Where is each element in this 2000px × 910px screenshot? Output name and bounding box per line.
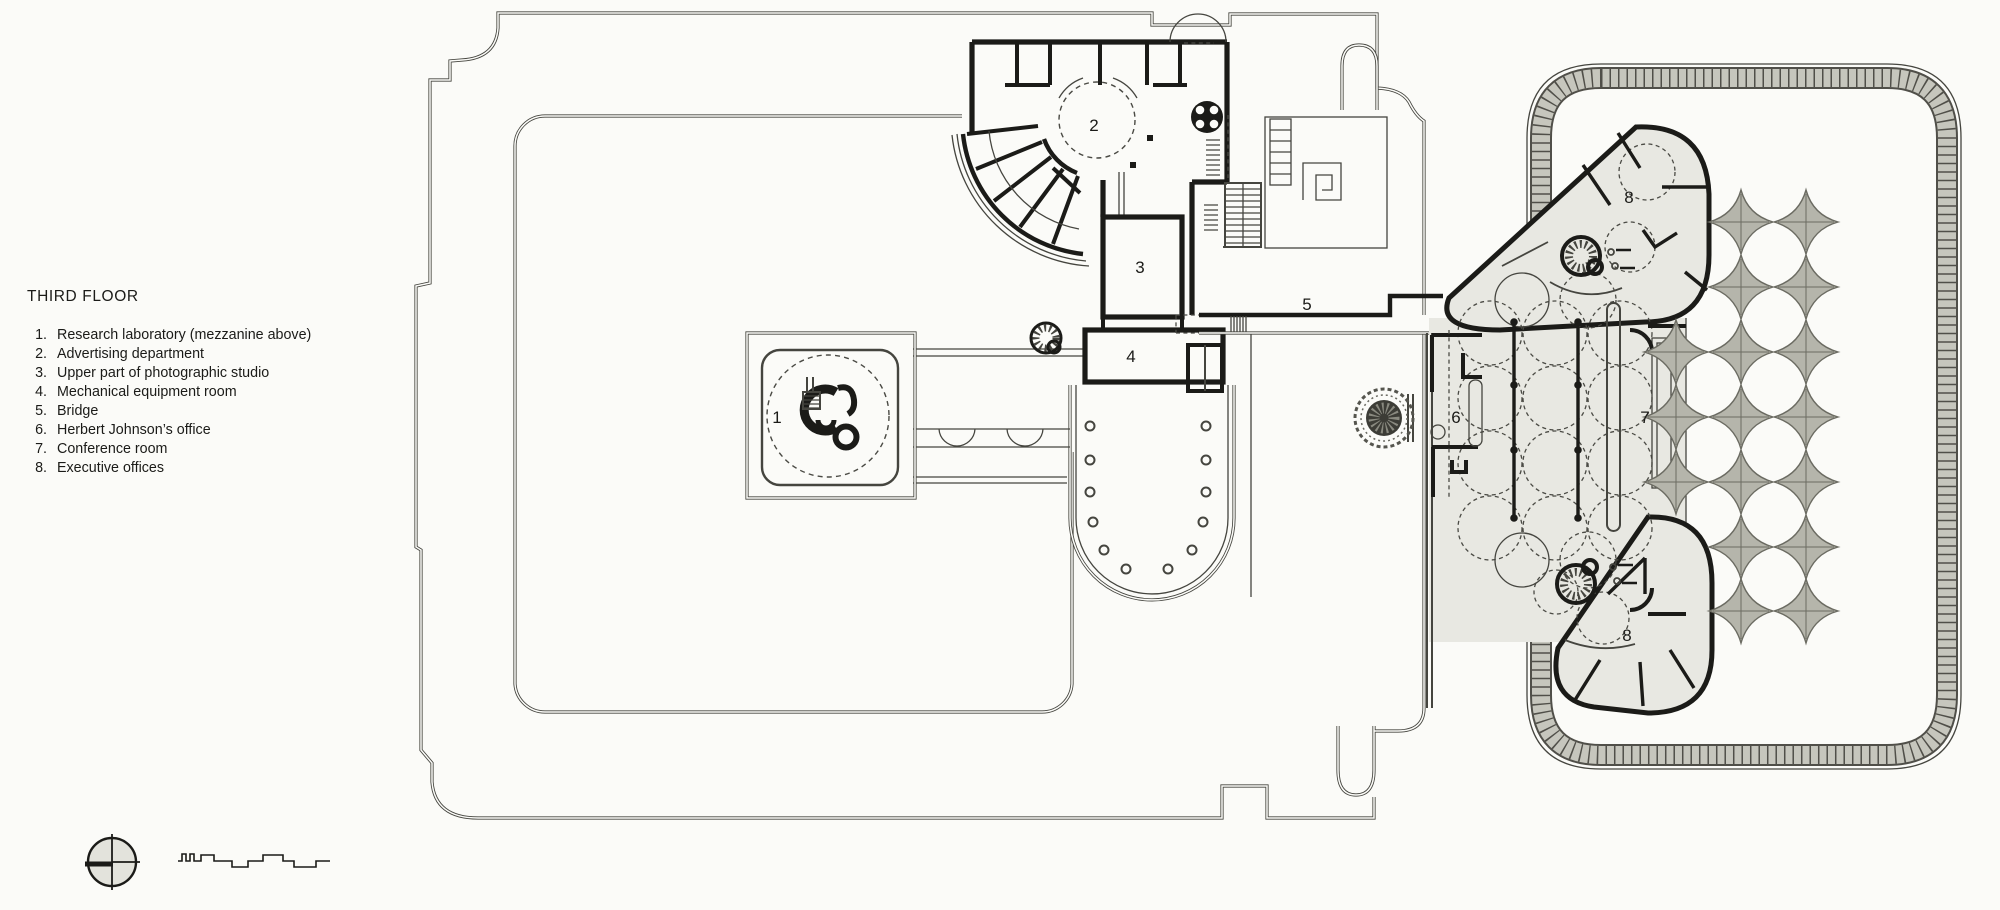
marker-advertising: 2 <box>1089 116 1098 135</box>
column-star <box>1774 450 1838 514</box>
legend-item-num: 4. <box>35 384 47 400</box>
marker-executive-lower: 8 <box>1622 626 1631 645</box>
site-boundary-outline-inner <box>416 13 1424 818</box>
elevator-icon <box>1191 101 1223 133</box>
rail-dot <box>1510 318 1518 326</box>
mechanical-room <box>1085 330 1223 382</box>
right-building <box>1427 64 1961 769</box>
research-lab-rounded-wall <box>762 350 898 485</box>
column-star <box>1709 320 1773 384</box>
upper-block <box>952 14 1387 382</box>
great-workroom-outline <box>515 116 1072 712</box>
research-lab-core-icon <box>803 377 857 448</box>
elevator-cab <box>1210 106 1219 115</box>
left-building-site <box>416 13 1443 818</box>
column-dot <box>1202 456 1211 465</box>
legend-item-label: Mechanical equipment room <box>57 384 237 400</box>
scale-bar <box>178 854 330 867</box>
legend-item-num: 3. <box>35 365 47 381</box>
column-dot <box>1164 565 1173 574</box>
arched-niche-top <box>1342 45 1377 110</box>
advertising-fan-arcs <box>963 134 1083 254</box>
covered-walkway <box>913 429 1070 483</box>
column-dot <box>1100 546 1109 555</box>
bridge-hatch <box>1231 316 1246 332</box>
rail-dot <box>1574 446 1582 454</box>
structural-column-dots <box>1130 135 1153 168</box>
column-dot <box>1188 546 1197 555</box>
legend-title: THIRD FLOOR <box>27 288 139 305</box>
column-star <box>1709 190 1773 254</box>
square-spiral-motif <box>1303 163 1341 200</box>
marker-research-lab: 1 <box>772 408 781 427</box>
legend-item-label: Bridge <box>57 403 98 419</box>
column-dot <box>1199 518 1208 527</box>
rail-dot <box>1574 381 1582 389</box>
column-star <box>1774 579 1838 643</box>
legend-item-num: 1. <box>35 327 47 343</box>
legend-item-num: 8. <box>35 460 47 476</box>
compass-icon <box>85 834 140 890</box>
legend-item-label: Herbert Johnson’s office <box>57 422 211 438</box>
legend-item-label: Upper part of photographic studio <box>57 365 269 381</box>
column-star <box>1709 255 1773 319</box>
rail-dot <box>1510 514 1518 522</box>
legend-item-label: Conference room <box>57 441 167 457</box>
column-dot <box>1086 422 1095 431</box>
research-lab-dashed-circle <box>767 355 889 477</box>
rail-dot <box>1574 514 1582 522</box>
floor-plan-drawing: 1 2 3 4 5 6 7 8 8 THIRD FLOOR 1. Researc… <box>0 0 2000 910</box>
advertising-fan-radial-walls <box>967 126 1078 244</box>
tree-planter-icon <box>1355 389 1413 447</box>
carport-court-inner-line <box>1076 385 1228 594</box>
elevator-cab <box>1196 120 1205 129</box>
column-star <box>1774 190 1838 254</box>
core-ring-circle <box>836 427 857 448</box>
column-dot <box>1202 488 1211 497</box>
main-stair-treads <box>1225 183 1261 247</box>
arched-niche-top-inner <box>1342 45 1377 110</box>
terrace-ladder-rungs <box>1270 130 1291 174</box>
executive-wing-upper <box>1447 127 1709 330</box>
legend-item-label: Executive offices <box>57 460 164 476</box>
legend: THIRD FLOOR 1. Research laboratory (mezz… <box>27 288 311 476</box>
legend-item-num: 5. <box>35 403 47 419</box>
advertising-fan-thin-lines <box>952 78 1137 266</box>
legend-item-num: 7. <box>35 441 47 457</box>
small-stair-ladders-icon <box>1204 140 1220 230</box>
legend-item-label: Advertising department <box>57 346 204 362</box>
rail-dot <box>1510 446 1518 454</box>
marker-mechanical: 4 <box>1126 347 1135 366</box>
column-star <box>1709 385 1773 449</box>
core-small-arc <box>818 420 834 428</box>
marker-johnson-office: 6 <box>1451 408 1460 427</box>
column-star <box>1774 320 1838 384</box>
core-appendage <box>838 387 854 414</box>
site-boundary-outline <box>416 13 1424 818</box>
marker-executive-upper: 8 <box>1624 188 1633 207</box>
carport-columns <box>1086 422 1211 574</box>
column-star <box>1709 450 1773 514</box>
bridge-north-wall <box>1199 296 1443 315</box>
roof-terrace <box>1265 117 1387 248</box>
column-star <box>1774 385 1838 449</box>
great-workroom-outline-inner <box>515 116 1072 712</box>
legend-item-num: 2. <box>35 346 47 362</box>
elevator-disk <box>1191 101 1223 133</box>
column-dot <box>1086 456 1095 465</box>
spiral-stair-icon <box>1031 323 1061 353</box>
column-dot <box>1122 565 1131 574</box>
marker-bridge: 5 <box>1302 295 1311 314</box>
legend-item-num: 6. <box>35 422 47 438</box>
column-dot <box>1089 518 1098 527</box>
column-star <box>1774 515 1838 579</box>
spiral-stair-treads <box>1036 328 1056 348</box>
column-star <box>1709 579 1773 643</box>
marker-conference: 7 <box>1640 408 1649 427</box>
rail-dot <box>1574 318 1582 326</box>
rail-dot <box>1510 381 1518 389</box>
column-star <box>1774 255 1838 319</box>
column-star <box>1709 515 1773 579</box>
marker-photographic: 3 <box>1135 258 1144 277</box>
floor-plan-page: 1 2 3 4 5 6 7 8 8 THIRD FLOOR 1. Researc… <box>0 0 2000 910</box>
legend-item-label: Research laboratory (mezzanine above) <box>57 327 311 343</box>
elevator-cab <box>1210 120 1219 129</box>
semicircle-niche <box>1170 14 1226 42</box>
elevator-cab <box>1196 106 1205 115</box>
column-dot <box>1086 488 1095 497</box>
column-dot <box>1202 422 1211 431</box>
